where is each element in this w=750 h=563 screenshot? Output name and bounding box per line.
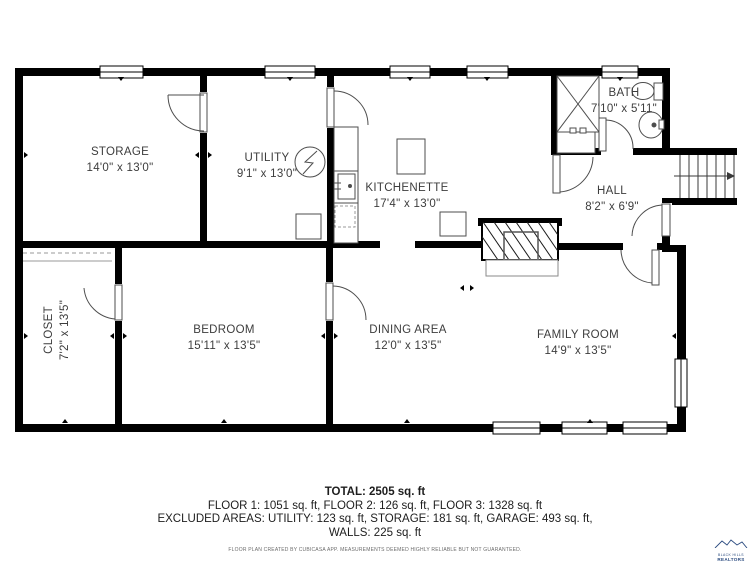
room-name: KITCHENETTE: [337, 180, 477, 196]
room-label-storage: STORAGE 14'0" x 13'0": [50, 144, 190, 176]
room-label-hall: HALL 8'2" x 6'9": [542, 183, 682, 215]
wall-closet-bedroom: [115, 248, 122, 424]
wall-mid-dining: [415, 241, 482, 248]
hearth: [486, 260, 558, 276]
room-dims: 15'11" x 13'5": [154, 338, 294, 354]
window-utility: [265, 66, 315, 78]
realtor-logo: BLACK HILLS REALTORS: [711, 535, 750, 563]
window-storage: [100, 66, 143, 78]
vanity-faucet-2: [580, 128, 586, 133]
room-dims: 7'10" x 5'11": [554, 101, 694, 117]
utility-appliance: [296, 214, 321, 239]
logo-line2: REALTORS: [711, 557, 750, 563]
room-label-bath: BATH 7'10" x 5'11": [554, 85, 694, 117]
window-family-bottom-2: [562, 422, 607, 434]
door-bath: [599, 118, 633, 151]
floor-areas: FLOOR 1: 1051 sq. ft, FLOOR 2: 126 sq. f…: [0, 500, 750, 514]
bath-sink-tap: [659, 120, 664, 129]
kitchen-table: [440, 212, 466, 236]
disclaimer: FLOOR PLAN CREATED BY CUBICASA APP. MEAS…: [0, 547, 750, 553]
room-name: HALL: [542, 183, 682, 199]
kitchen-island: [397, 139, 425, 174]
mountains-icon: [714, 539, 748, 548]
room-dims: 7'2" x 13'5": [57, 260, 73, 400]
vanity-faucet-1: [570, 128, 576, 133]
wall-hall-bottom-corner: [657, 243, 670, 250]
room-label-utility: UTILITY 9'1" x 13'0": [197, 150, 337, 182]
window-family-bottom-3: [623, 422, 667, 434]
wall-exterior-left: [15, 68, 23, 432]
room-name: FAMILY ROOM: [508, 327, 648, 343]
wall-mid-left: [15, 241, 380, 248]
window-bath: [602, 66, 638, 78]
door-storage: [168, 93, 207, 132]
room-dims: 9'1" x 13'0": [197, 166, 337, 182]
stairs-entry: [674, 155, 735, 198]
room-name: BATH: [554, 85, 694, 101]
room-name: STORAGE: [50, 144, 190, 160]
room-name: DINING AREA: [338, 322, 478, 338]
room-dims: 8'2" x 6'9": [542, 199, 682, 215]
excluded-areas: EXCLUDED AREAS: UTILITY: 123 sq. ft, STO…: [0, 513, 750, 527]
walls-layer: [15, 68, 737, 432]
room-dims: 14'0" x 13'0": [50, 160, 190, 176]
door-closet: [84, 285, 122, 320]
door-hall-family: [621, 250, 659, 285]
door-bedroom: [326, 283, 366, 320]
room-dims: 14'9" x 13'5": [508, 343, 648, 359]
window-family-right: [675, 359, 687, 407]
walls-area: WALLS: 225 sq. ft: [0, 527, 750, 541]
floor-plan-page: STORAGE 14'0" x 13'0" UTILITY 9'1" x 13'…: [0, 0, 750, 563]
room-label-closet: CLOSET 7'2" x 13'5": [41, 260, 73, 400]
window-family-bottom-1: [493, 422, 540, 434]
room-dims: 12'0" x 13'5": [338, 338, 478, 354]
room-label-bedroom: BEDROOM 15'11" x 13'5": [154, 322, 294, 354]
room-name: BEDROOM: [154, 322, 294, 338]
room-dims: 17'4" x 13'0": [337, 196, 477, 212]
room-label-dining-area: DINING AREA 12'0" x 13'5": [338, 322, 478, 354]
wall-stairs-top: [662, 148, 737, 155]
window-kitchenette-2: [467, 66, 508, 78]
room-label-family-room: FAMILY ROOM 14'9" x 13'5": [508, 327, 648, 359]
window-kitchenette-1: [390, 66, 430, 78]
wall-hall-bottom: [558, 243, 623, 250]
room-label-kitchenette: KITCHENETTE 17'4" x 13'0": [337, 180, 477, 212]
bath-sink-drain: [652, 123, 656, 127]
wall-bedroom-dining: [326, 248, 333, 424]
bath-vanity: [557, 132, 595, 153]
wall-bath-bottom-right: [633, 148, 662, 155]
total-area: TOTAL: 2505 sq. ft: [0, 486, 750, 500]
door-utility-kitchenette: [327, 88, 368, 127]
room-name: CLOSET: [41, 260, 57, 400]
room-name: UTILITY: [197, 150, 337, 166]
area-summary: TOTAL: 2505 sq. ft FLOOR 1: 1051 sq. ft,…: [0, 486, 750, 553]
